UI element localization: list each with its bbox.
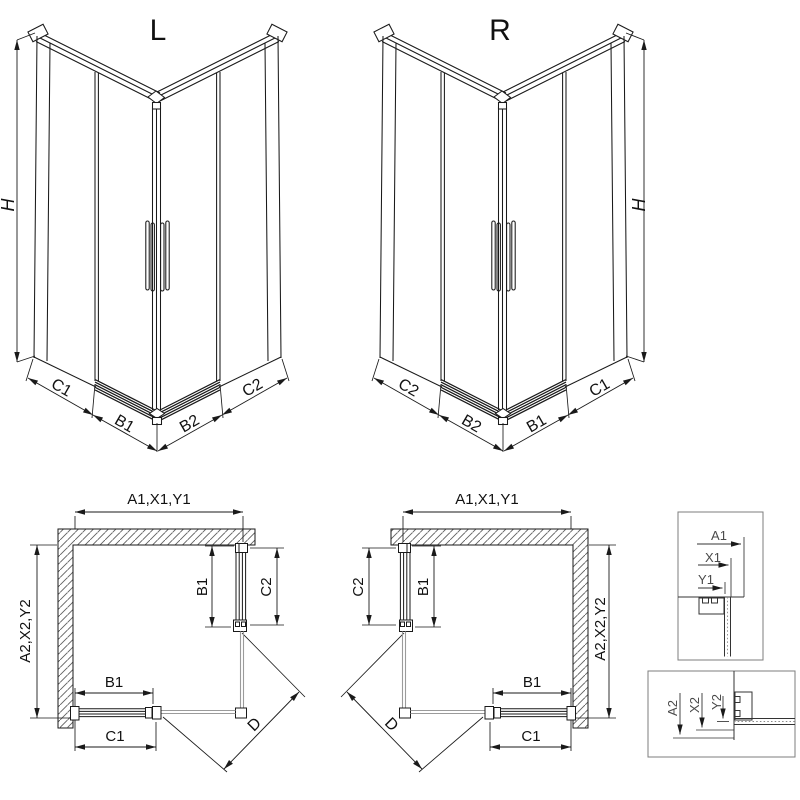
shower-enclosure-diagram: L H C1 B1 B2 C2 R H C2 B2 B1 C1 A1,X1,Y1…: [0, 0, 800, 800]
dim-label-b2: B2: [459, 412, 485, 437]
detail-box-width: A1 X1 Y1: [678, 512, 763, 660]
dim-label-c2: C2: [240, 376, 266, 401]
plan-view-left: A1,X1,Y1 A2,X2,Y2 B1 C2 B1 C1 D: [17, 491, 305, 772]
wall-hatched: [391, 529, 588, 728]
plan-b1-front-label: B1: [105, 674, 123, 691]
iso-left-half-panels: [372, 24, 506, 451]
detail-a1-label: A1: [711, 528, 727, 543]
plan-b1-front-label: B1: [523, 674, 541, 691]
plan-b1-side-label: B1: [194, 578, 211, 596]
plan-c2-side-label: C2: [350, 577, 367, 596]
iso-view-right: R H C2 B2 B1 C1: [372, 14, 649, 452]
detail-a2-label: A2: [665, 700, 680, 716]
dim-label-b1: B1: [112, 412, 138, 437]
plan-view-right: A1,X1,Y1 A2,X2,Y2 C2 B1 B1 C1 D: [341, 491, 616, 772]
plan-c1-front-label: C1: [521, 728, 540, 745]
detail-x1-label: X1: [705, 550, 721, 565]
dim-label-c2: C2: [395, 376, 421, 401]
height-dim-label: H: [629, 198, 649, 212]
dim-label-c1: C1: [587, 376, 613, 401]
plan-side-dim-label: A2,X2,Y2: [592, 597, 609, 660]
plan-b1-side-label: B1: [415, 578, 432, 596]
view-title-L: L: [150, 14, 167, 47]
iso-view-left: L H C1 B1 B2 C2: [0, 14, 289, 452]
plan-side-dim-label: A2,X2,Y2: [17, 599, 34, 662]
plan-c2-side-label: C2: [258, 577, 275, 596]
plan-top-dim-label: A1,X1,Y1: [455, 491, 518, 508]
iso-left-half-panels: [26, 24, 160, 451]
plan-c1-front-label: C1: [105, 728, 124, 745]
wall-hatched: [58, 529, 255, 728]
detail-x2-label: X2: [687, 697, 702, 713]
view-title-R: R: [489, 14, 511, 47]
detail-y1-label: Y1: [698, 572, 714, 587]
plan-diagonal-label: D: [381, 715, 401, 735]
height-dimension-line: [17, 33, 35, 362]
iso-right-half-panels: [155, 24, 289, 451]
dim-label-b1: B1: [524, 412, 550, 437]
dim-label-b2: B2: [177, 412, 203, 437]
plan-top-dim-label: A1,X1,Y1: [127, 491, 190, 508]
iso-right-half-panels: [501, 24, 635, 451]
height-dimension-line: [626, 33, 644, 362]
technical-drawing-page: L H C1 B1 B2 C2 R H C2 B2 B1 C1 A1,X1,Y1…: [0, 0, 800, 800]
dim-label-c1: C1: [48, 376, 74, 401]
detail-y2-label: Y2: [709, 694, 724, 710]
plan-diagonal-label: D: [245, 715, 265, 735]
detail-box-depth: A2 X2 Y2: [648, 671, 795, 757]
height-dim-label: H: [0, 198, 18, 212]
